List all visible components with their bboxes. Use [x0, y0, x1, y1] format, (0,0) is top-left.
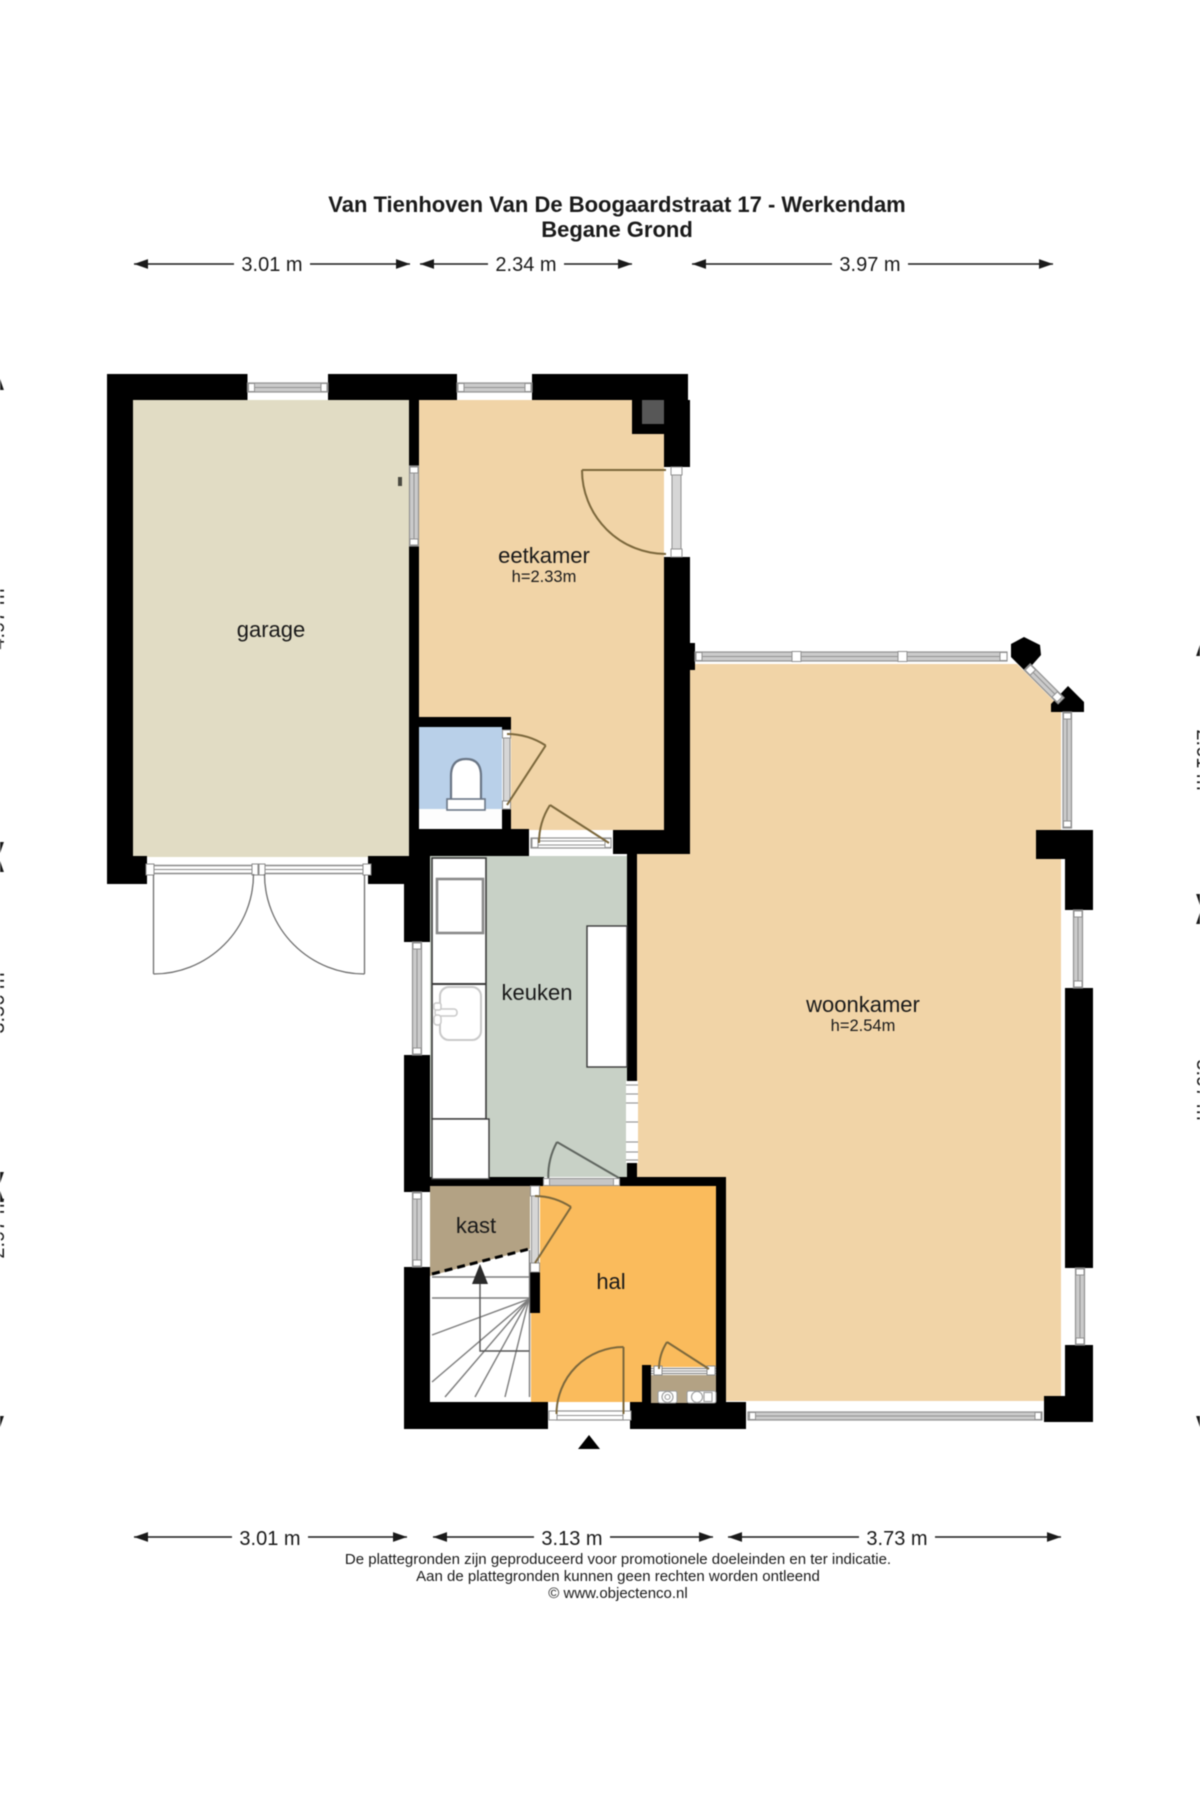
svg-text:eetkamer: eetkamer: [498, 543, 590, 568]
svg-text:Van Tienhoven Van De Boogaards: Van Tienhoven Van De Boogaardstraat 17 -…: [328, 192, 906, 217]
svg-text:3.97 m: 3.97 m: [839, 254, 900, 276]
svg-text:5.97 m: 5.97 m: [1192, 1059, 1200, 1120]
svg-text:woonkamer: woonkamer: [805, 992, 920, 1017]
svg-text:keuken: keuken: [502, 980, 573, 1005]
svg-text:h=2.54m: h=2.54m: [831, 1017, 896, 1035]
svg-text:2.61 m: 2.61 m: [1192, 729, 1200, 790]
svg-text:© www.objectenco.nl: © www.objectenco.nl: [548, 1585, 687, 1602]
svg-text:3.01 m: 3.01 m: [241, 254, 302, 276]
svg-text:2.97 m: 2.97 m: [0, 1197, 9, 1258]
svg-text:3.01 m: 3.01 m: [239, 1528, 300, 1550]
svg-text:hal: hal: [596, 1269, 625, 1294]
svg-text:3.73 m: 3.73 m: [866, 1528, 927, 1550]
svg-text:3.13 m: 3.13 m: [541, 1528, 602, 1550]
svg-text:3.56 m: 3.56 m: [0, 972, 9, 1033]
svg-text:Aan de plattegronden kunnen ge: Aan de plattegronden kunnen geen rechten…: [416, 1568, 820, 1585]
svg-text:De plattegronden zijn geproduc: De plattegronden zijn geproduceerd voor …: [345, 1551, 891, 1568]
svg-text:2.34 m: 2.34 m: [495, 254, 556, 276]
svg-text:kast: kast: [456, 1213, 496, 1238]
svg-text:h=2.33m: h=2.33m: [512, 568, 577, 586]
svg-text:4.97 m: 4.97 m: [0, 588, 9, 649]
svg-text:garage: garage: [237, 617, 306, 642]
svg-text:Begane Grond: Begane Grond: [541, 217, 693, 242]
